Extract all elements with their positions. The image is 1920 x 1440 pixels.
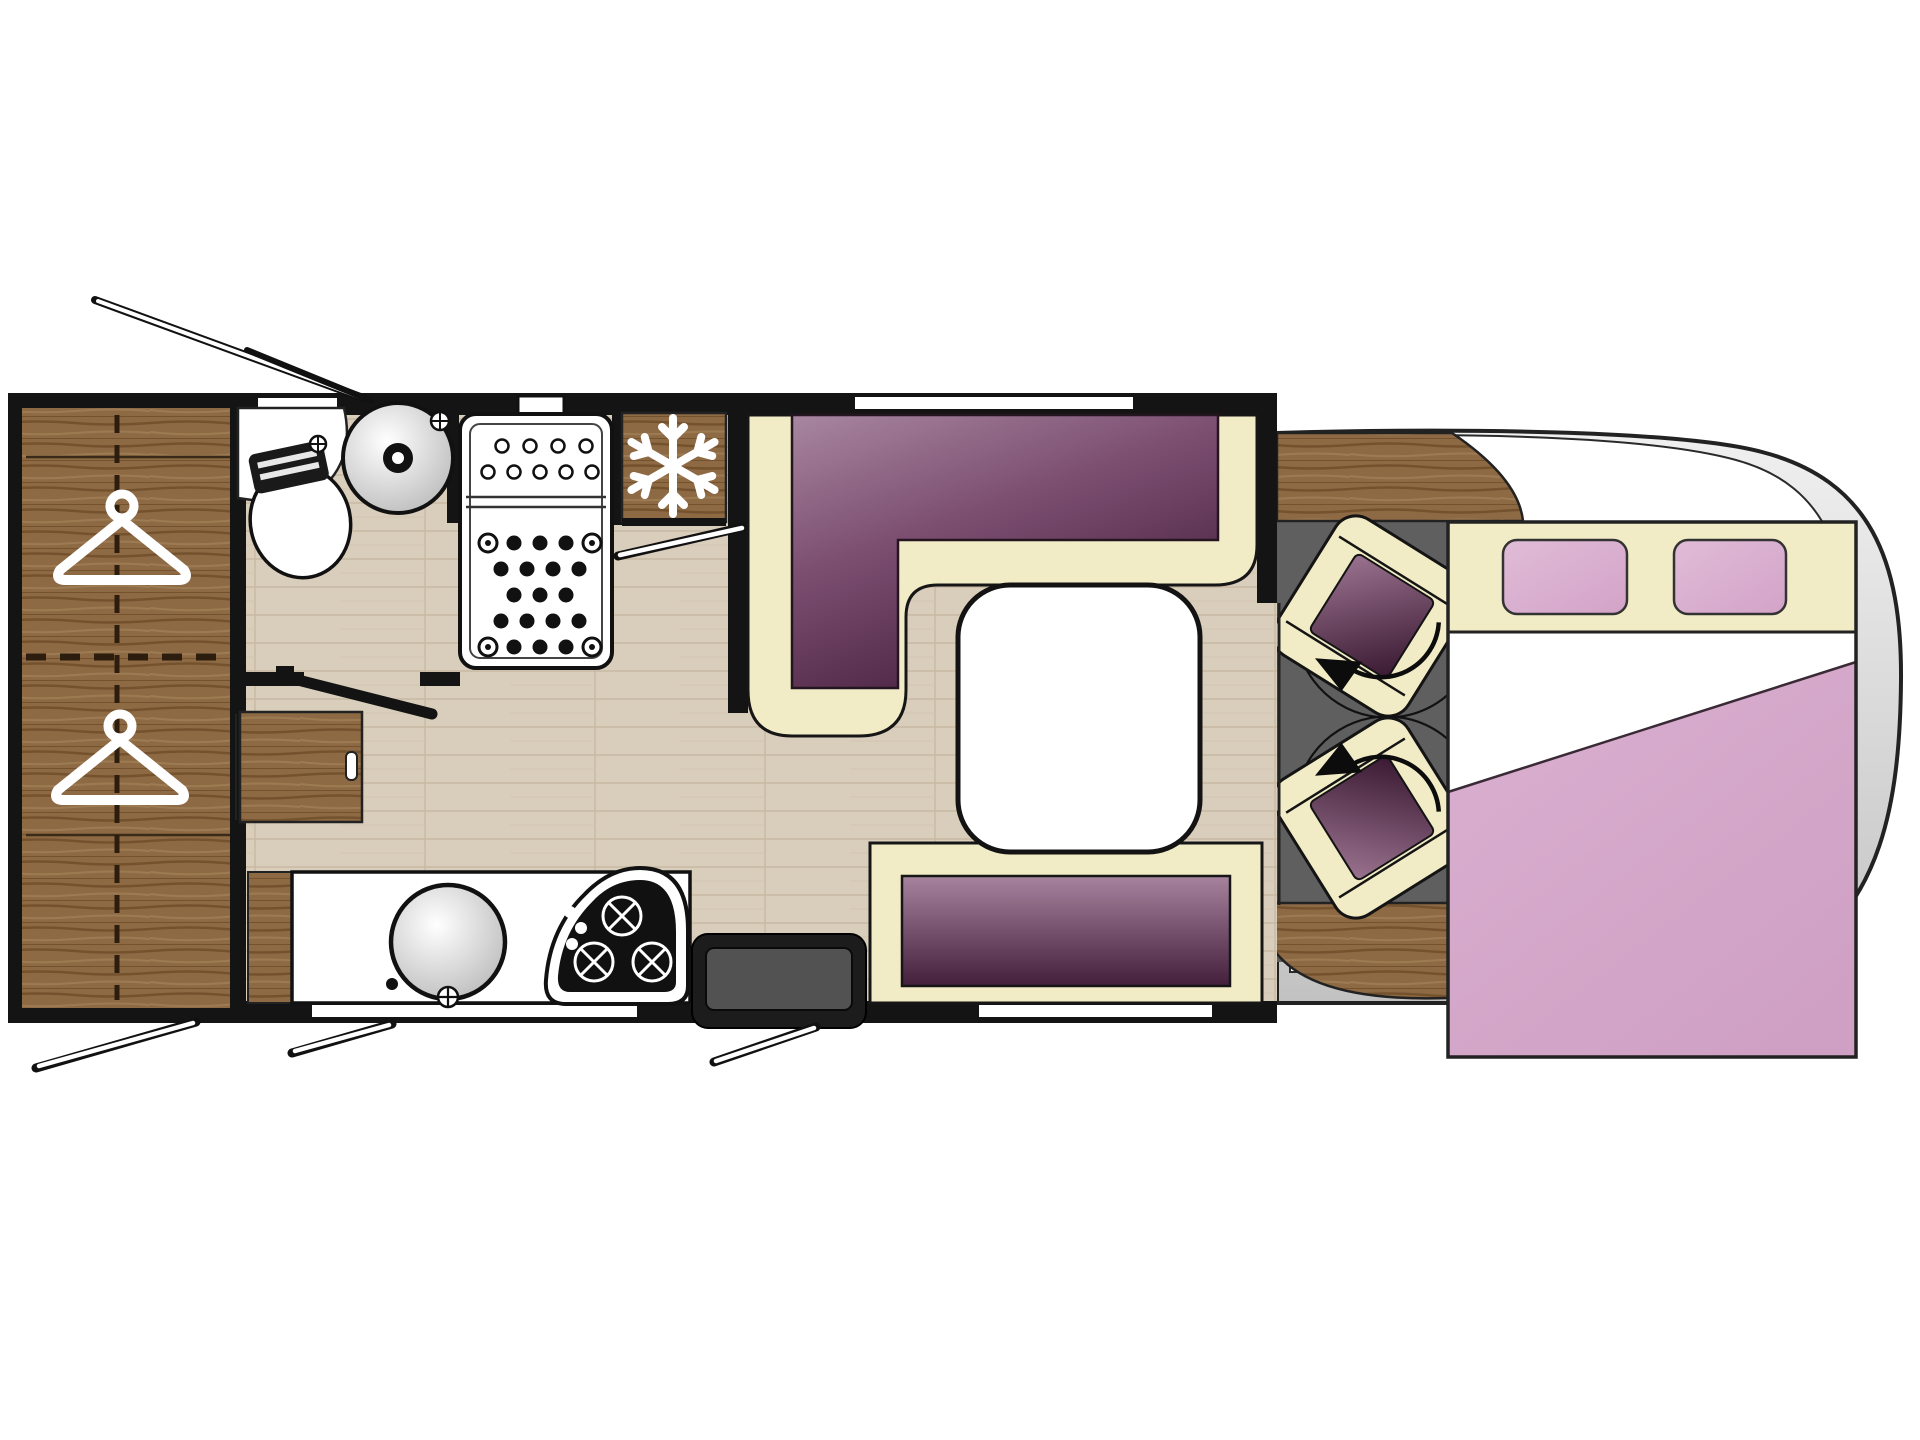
dinette-table [958, 585, 1200, 852]
window-flap-kitchen [292, 1024, 392, 1053]
motorhome-floorplan [0, 0, 1920, 1440]
window-kitchen [312, 1005, 637, 1017]
wall-wardrobe-right [230, 413, 246, 1003]
counter-side-cabinet [248, 872, 292, 1003]
wall-fridge-dinette [728, 395, 748, 713]
window-flap-top-left [95, 300, 372, 401]
wardrobe [22, 408, 230, 1008]
side-bench [870, 843, 1262, 1003]
faucet-icon [431, 412, 449, 430]
bed-pillow [1674, 540, 1786, 614]
floorplan-canvas [0, 0, 1920, 1440]
cab-section [1257, 431, 1901, 1057]
entrance [692, 934, 866, 1062]
habitation-section [8, 393, 1279, 1062]
desk-handle [346, 752, 357, 780]
toilet-flush-knob [310, 436, 326, 452]
shower [460, 396, 612, 668]
window-flap-bottom-left [36, 1022, 196, 1068]
bed-pillow [1503, 540, 1627, 614]
washbasin [343, 403, 453, 513]
overcab-double-bed [1448, 522, 1856, 1057]
kitchen-counter [248, 868, 690, 1007]
window-dinette [855, 397, 1133, 409]
wall-dinette-cab [1257, 395, 1277, 603]
faucet-icon [438, 987, 458, 1007]
side-desk [236, 712, 362, 822]
wall-bathroom-stub-right [420, 672, 460, 686]
entry-door-swing [714, 1027, 816, 1062]
window-bench [979, 1005, 1212, 1017]
